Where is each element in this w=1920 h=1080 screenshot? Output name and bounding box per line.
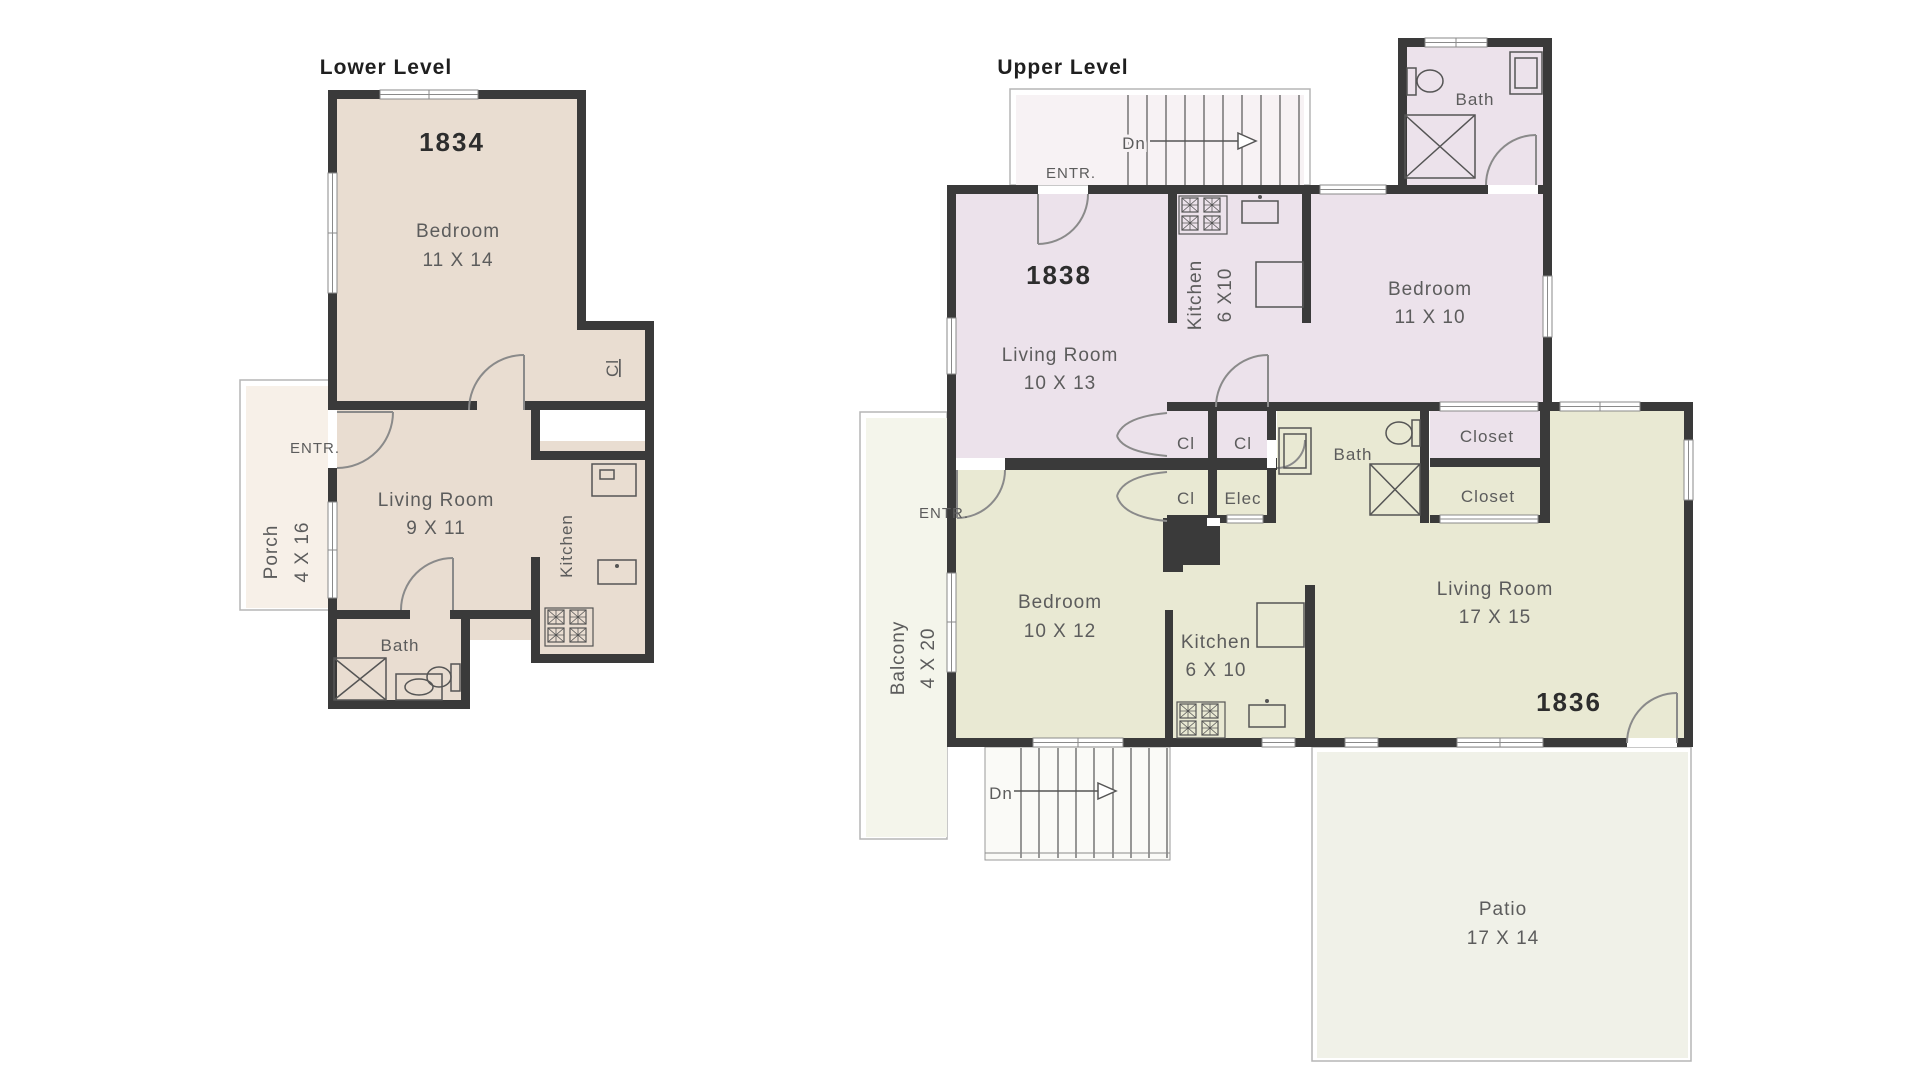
closet-b-label-1838: Cl [1234, 434, 1252, 453]
closet-upper-label-1836: Closet [1460, 427, 1514, 446]
closet-lower-label-1836: Closet [1461, 487, 1515, 506]
room-label-bath-1836: Bath [1334, 445, 1373, 464]
room-label-bedroom-1838: Bedroom [1388, 279, 1472, 300]
upper-level: Upper Level Dn ENTR. 1838 Living Room 10… [860, 38, 1693, 1061]
stairs-dn-top: Dn [1122, 134, 1146, 153]
room-label-bedroom-1834: Bedroom [416, 221, 500, 242]
room-label-living-1838: Living Room [1002, 345, 1119, 366]
entry-label-1836: ENTR. [919, 505, 969, 522]
unit-number-1836: 1836 [1536, 687, 1602, 717]
floorplan-canvas: Lower Level 1834 Bedroom 11 X 14 Cl ENTR… [0, 0, 1920, 1080]
room-label-bedroom-1836: Bedroom [1018, 592, 1102, 613]
balcony-dims: 4 X 20 [918, 628, 939, 689]
unit-number-1838: 1838 [1026, 260, 1092, 290]
chimney-notch [1207, 518, 1220, 526]
entry-label-1838: ENTR. [1046, 165, 1096, 182]
patio-label: Patio [1479, 899, 1527, 920]
room-dims-bedroom-1834: 11 X 14 [422, 250, 493, 271]
balcony-label: Balcony [888, 621, 909, 696]
stairs-dn-bottom: Dn [989, 784, 1013, 803]
closet-a-label-1838: Cl [1177, 434, 1195, 453]
room-label-kitchen-1834: Kitchen [557, 514, 576, 578]
room-label-kitchen-1836: Kitchen [1181, 632, 1251, 653]
lower-level-title: Lower Level [320, 56, 452, 79]
porch-dims: 4 X 16 [292, 522, 313, 583]
room-label-bath-1834: Bath [381, 636, 420, 655]
porch-label: Porch [261, 525, 282, 580]
room-label-living-1834: Living Room [378, 490, 495, 511]
room-dims-living-1834: 9 X 11 [406, 518, 466, 539]
upper-level-title: Upper Level [997, 56, 1128, 79]
room-dims-bedroom-1836: 10 X 12 [1024, 621, 1097, 642]
elec-label-1836: Elec [1224, 489, 1261, 508]
room-dims-living-1838: 10 X 13 [1024, 373, 1097, 394]
entry-label-1834: ENTR. [290, 440, 340, 457]
porch [240, 380, 332, 610]
lower-level: Lower Level 1834 Bedroom 11 X 14 Cl ENTR… [240, 56, 654, 709]
room-dims-living-1836: 17 X 15 [1459, 607, 1532, 628]
stairs-bottom [985, 747, 1170, 860]
room-dims-kitchen-1838: 6 X10 [1215, 268, 1236, 323]
unit-number-1834: 1834 [419, 127, 485, 157]
closet-label-1834: Cl [603, 359, 622, 377]
closet-small-label-1836: Cl [1177, 489, 1195, 508]
room-label-kitchen-1838: Kitchen [1185, 260, 1206, 330]
room-dims-bedroom-1838: 11 X 10 [1394, 307, 1465, 328]
room-label-living-1836: Living Room [1437, 579, 1554, 600]
room-label-bath-1838: Bath [1456, 90, 1495, 109]
room-dims-kitchen-1836: 6 X 10 [1186, 660, 1247, 681]
patio-dims: 17 X 14 [1467, 928, 1540, 949]
